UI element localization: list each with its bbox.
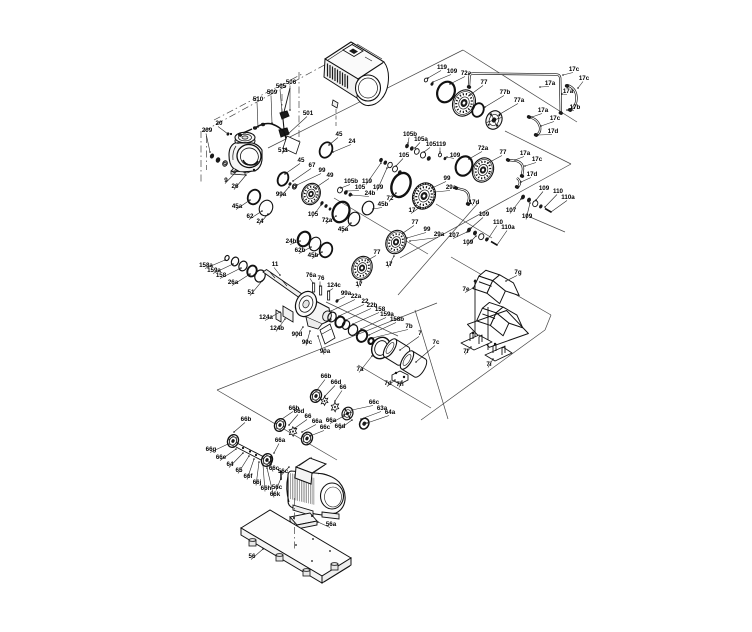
svg-text:17c: 17c [569,66,580,73]
svg-text:20: 20 [216,120,223,127]
svg-text:77: 77 [374,249,381,256]
svg-text:76: 76 [318,275,325,282]
svg-text:56a: 56a [326,521,337,528]
svg-text:110a: 110a [501,224,515,231]
svg-text:109: 109 [479,211,490,218]
svg-text:110a: 110a [561,194,575,201]
svg-text:29a: 29a [434,231,445,238]
svg-text:158b: 158b [390,316,404,323]
svg-text:509: 509 [267,89,278,96]
svg-text:66: 66 [340,384,347,391]
svg-text:66b: 66b [241,416,252,423]
svg-text:17d: 17d [469,199,480,206]
svg-text:65: 65 [236,467,243,474]
svg-text:109: 109 [539,185,550,192]
svg-text:77a: 77a [514,97,525,104]
svg-text:7g: 7g [514,269,521,276]
svg-text:17c: 17c [579,75,590,82]
svg-text:45b: 45b [378,201,389,208]
svg-text:72: 72 [387,195,394,202]
svg-text:7f: 7f [463,348,469,355]
svg-text:99: 99 [424,226,431,233]
svg-text:17c: 17c [532,156,543,163]
svg-text:24: 24 [257,218,264,225]
svg-text:64a: 64a [385,409,396,416]
svg-text:99a: 99a [276,191,287,198]
svg-text:72a: 72a [478,145,489,152]
svg-text:17a: 17a [545,80,556,87]
svg-text:105: 105 [308,211,319,218]
svg-text:64: 64 [227,461,234,468]
svg-text:105: 105 [399,152,410,159]
svg-text:7a: 7a [357,366,364,373]
svg-text:66k: 66k [270,491,281,498]
svg-text:501: 501 [303,110,314,117]
svg-text:11: 11 [272,261,279,268]
svg-text:17a: 17a [520,150,531,157]
svg-text:77: 77 [481,79,488,86]
svg-text:506: 506 [286,79,297,86]
svg-text:66a: 66a [275,437,286,444]
svg-text:77b: 77b [500,89,511,96]
svg-text:72a: 72a [322,217,333,224]
svg-text:77: 77 [500,149,507,156]
svg-text:24b: 24b [365,190,376,197]
svg-text:99: 99 [319,167,326,174]
svg-text:99: 99 [444,175,451,182]
svg-text:510: 510 [253,96,264,103]
svg-text:7: 7 [418,330,422,337]
svg-text:119: 119 [436,141,447,148]
svg-text:90d: 90d [292,331,303,338]
svg-text:49: 49 [327,172,334,179]
svg-text:51: 51 [248,289,255,296]
svg-text:17d: 17d [527,171,538,178]
svg-text:26: 26 [232,183,239,190]
svg-text:109: 109 [447,68,458,75]
svg-text:17c: 17c [550,115,561,122]
svg-text:76a: 76a [306,272,317,279]
svg-text:17a: 17a [538,107,549,114]
svg-text:119: 119 [362,178,373,185]
svg-text:90a: 90a [320,348,331,355]
svg-text:66c: 66c [320,424,331,431]
svg-text:22a: 22a [351,293,362,300]
svg-text:24: 24 [349,138,356,145]
svg-text:45: 45 [298,157,305,164]
svg-text:45: 45 [336,131,343,138]
svg-text:7b: 7b [405,323,412,330]
svg-text:124b: 124b [270,325,284,332]
svg-text:67: 67 [309,162,316,169]
svg-text:77: 77 [412,219,419,226]
svg-text:66d: 66d [294,408,305,415]
svg-text:124c: 124c [327,282,341,289]
svg-text:107: 107 [506,207,517,214]
svg-text:209: 209 [202,127,213,134]
svg-text:17d: 17d [548,128,559,135]
svg-text:17b: 17b [570,104,581,111]
svg-text:7c: 7c [433,339,440,346]
